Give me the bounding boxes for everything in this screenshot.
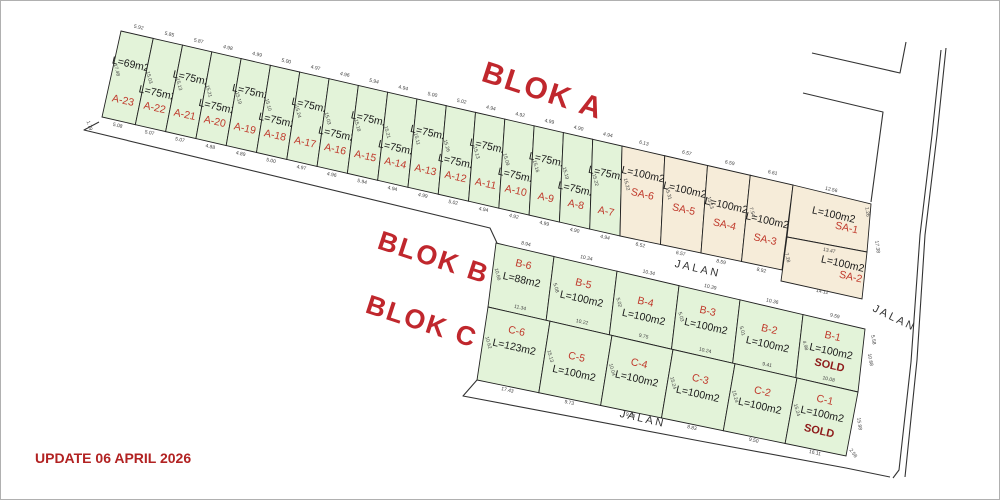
dim-top-A-21: 5.87 xyxy=(193,37,204,45)
dim-bot-SA-5: 6.57 xyxy=(675,250,686,258)
boundary-line-2 xyxy=(812,42,906,73)
dim-top-A-22: 5.85 xyxy=(164,31,175,39)
dim-top-B-3: 10.39 xyxy=(703,283,717,292)
lot-A-9[interactable] xyxy=(529,126,563,222)
lot-C-5[interactable] xyxy=(539,321,612,405)
dim-top-A-18: 5.00 xyxy=(281,58,292,66)
dim-top-A-7: 4.94 xyxy=(602,131,613,139)
dim-bot-A-9: 4.99 xyxy=(539,220,550,228)
title-blok-b: BLOK B xyxy=(374,225,493,289)
dim-top-SA-5: 6.57 xyxy=(681,149,692,157)
dim-bot-SA-4: 8.59 xyxy=(716,258,727,266)
dim-bot-A-15: 5.94 xyxy=(357,178,368,186)
dim-top-SA-6: 6.13 xyxy=(638,140,649,148)
dim-extra-5: 17.38 xyxy=(873,240,881,253)
site-plan-canvas: L=69m2A-235.9217.485.08L=75m2A-225.8515.… xyxy=(0,0,1000,500)
boundary-line-4 xyxy=(905,48,946,477)
dim-top-A-9: 4.99 xyxy=(544,118,555,126)
dim-bot-A-23: 5.08 xyxy=(112,122,123,130)
boundary-line-3 xyxy=(803,93,883,202)
dim-top-A-8: 4.90 xyxy=(573,125,584,133)
dim-top-A-20: 4.98 xyxy=(222,44,233,52)
dim-top-A-12: 5.02 xyxy=(456,98,467,106)
dim-bot-C-3: 8.83 xyxy=(686,424,697,432)
dim-extra-11: 5.58 xyxy=(869,335,877,346)
dim-bot-A-7: 4.94 xyxy=(599,234,610,242)
dim-top-A-16: 4.96 xyxy=(339,71,350,79)
dim-top-A-13: 5.00 xyxy=(427,91,438,99)
dim-top-SA-3: 6.61 xyxy=(767,169,778,177)
dim-top-A-10: 4.92 xyxy=(515,111,526,119)
dim-bot-A-13: 4.99 xyxy=(417,192,428,200)
dim-bot-A-16: 4.96 xyxy=(326,171,337,179)
road-label-jalan-1: JALAN xyxy=(674,258,722,280)
site-plan-svg: L=69m2A-235.9217.485.08L=75m2A-225.8515.… xyxy=(0,0,1000,500)
dim-bot-A-8: 4.90 xyxy=(569,227,580,235)
dim-top-A-23: 5.92 xyxy=(133,24,144,32)
dim-top-B-5: 10.34 xyxy=(579,254,593,263)
dim-bot-A-21: 5.07 xyxy=(174,136,185,144)
dim-top-A-19: 4.99 xyxy=(252,51,263,59)
dim-bot-A-18: 5.00 xyxy=(266,157,277,165)
dim-bot-C-2: 9.50 xyxy=(748,437,759,445)
dim-top-A-15: 5.94 xyxy=(369,78,380,86)
dim-extra-9: 15.98 xyxy=(855,417,863,430)
dim-bot-SA-6: 6.52 xyxy=(635,242,646,250)
dim-top-B-4: 10.34 xyxy=(642,269,656,278)
dim-top-B-6: 8.94 xyxy=(520,240,531,248)
dim-bot-A-17: 4.97 xyxy=(296,164,307,172)
dim-bot-C-5: 9.73 xyxy=(564,399,575,407)
dim-extra-1: 1.79 xyxy=(85,120,94,131)
dim-top-A-14: 4.94 xyxy=(398,84,409,92)
dim-bot-C-1: 16.11 xyxy=(808,449,821,458)
dim-top-B-1: 9.59 xyxy=(829,312,840,320)
dim-extra-8: 10.68 xyxy=(866,353,874,367)
dim-bot-A-12: 5.02 xyxy=(448,199,459,207)
road-label-jalan-2: JALAN xyxy=(871,303,918,334)
title-blok-a: BLOK A xyxy=(478,56,608,126)
dim-bot-SA-3: 8.92 xyxy=(756,267,767,275)
update-note: UPDATE 06 APRIL 2026 xyxy=(35,450,191,466)
lot-A-7[interactable] xyxy=(590,139,622,236)
dim-extra-4: 14.12 xyxy=(815,288,829,296)
dim-extra-10: 2.58 xyxy=(848,448,859,460)
boundary-line-5 xyxy=(893,50,941,478)
dim-top-A-11: 4.94 xyxy=(485,105,496,113)
title-blok-c: BLOK C xyxy=(362,289,481,353)
dim-bot-A-10: 4.92 xyxy=(508,213,519,221)
dim-bot-A-20: 4.88 xyxy=(205,143,216,151)
dim-top-A-17: 4.97 xyxy=(310,64,321,72)
dim-top-B-2: 10.36 xyxy=(765,297,779,306)
dim-bot-A-19: 4.89 xyxy=(235,150,246,158)
dim-bot-A-14: 4.94 xyxy=(387,185,398,193)
dim-top-SA-4: 6.59 xyxy=(724,159,735,167)
dim-bot-A-11: 4.94 xyxy=(478,206,489,214)
dim-bot-A-22: 5.07 xyxy=(144,129,155,137)
